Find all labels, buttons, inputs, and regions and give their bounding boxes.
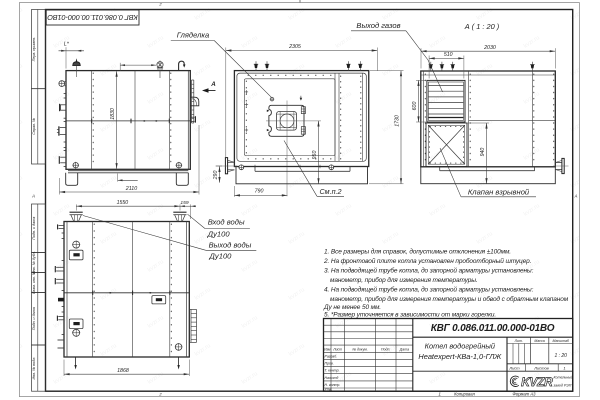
svg-text:Клапан взрывной: Клапан взрывной bbox=[468, 187, 530, 196]
svg-text:А: А bbox=[210, 81, 216, 88]
svg-text:1 : 20: 1 : 20 bbox=[554, 353, 567, 359]
svg-text:завод РЭП: завод РЭП bbox=[553, 384, 572, 388]
svg-text:940: 940 bbox=[480, 148, 486, 157]
svg-text:2110: 2110 bbox=[125, 186, 137, 192]
svg-text:Подп. и дата: Подп. и дата bbox=[32, 217, 36, 240]
svg-text:КВГ 0.086.011.00.000-01ВО: КВГ 0.086.011.00.000-01ВО bbox=[431, 323, 555, 334]
svg-text:1868: 1868 bbox=[117, 368, 129, 374]
svg-text:А ( 1 : 20 ): А ( 1 : 20 ) bbox=[464, 22, 500, 31]
svg-text:Ду100: Ду100 bbox=[209, 252, 233, 261]
svg-text:Масштаб: Масштаб bbox=[553, 339, 570, 343]
svg-text:Справ. №: Справ. № bbox=[32, 118, 36, 135]
svg-text:Котел водогрейный: Котел водогрейный bbox=[425, 341, 495, 350]
svg-text:А: А bbox=[31, 194, 35, 199]
svg-text:Лит.: Лит. bbox=[514, 339, 523, 343]
svg-text:См.п.2: См.п.2 bbox=[319, 187, 341, 196]
svg-text:Подп.: Подп. bbox=[381, 347, 390, 351]
svg-text:Инв. № подл.: Инв. № подл. bbox=[32, 357, 36, 380]
svg-text:манометр, прибор для измерения: манометр, прибор для измерения температу… bbox=[330, 276, 478, 284]
svg-text:510: 510 bbox=[444, 52, 453, 58]
svg-text:Подп. и дата: Подп. и дата bbox=[32, 307, 36, 330]
svg-text:Ду не менее 50 мм.: Ду не менее 50 мм. bbox=[323, 304, 381, 311]
svg-text:№ докум.: № докум. bbox=[352, 347, 367, 351]
svg-text:KVZR: KVZR bbox=[521, 375, 553, 389]
svg-text:Вход воды: Вход воды bbox=[208, 218, 245, 227]
svg-text:5. *Размер уточняется в зависи: 5. *Размер уточняется в зависимости от м… bbox=[324, 312, 496, 319]
svg-text:Взам. инв. №: Взам. инв. № bbox=[32, 271, 36, 294]
svg-text:Разраб.: Разраб. bbox=[325, 354, 338, 358]
svg-text:1: 1 bbox=[563, 365, 565, 370]
svg-text:А: А bbox=[574, 194, 578, 199]
svg-text:950: 950 bbox=[312, 151, 318, 160]
svg-text:159: 159 bbox=[180, 200, 188, 206]
svg-text:Листов: Листов bbox=[533, 365, 549, 370]
svg-text:1830: 1830 bbox=[110, 108, 116, 120]
svg-text:манометр, прибор для измерения: манометр, прибор для измерения температу… bbox=[330, 295, 569, 303]
svg-text:1550: 1550 bbox=[117, 200, 129, 206]
svg-text:1. Все размеры для справок, до: 1. Все размеры для справок, допустимые о… bbox=[324, 248, 511, 256]
svg-text:Лист: Лист bbox=[508, 365, 520, 370]
svg-text:Лист: Лист bbox=[332, 347, 342, 351]
svg-text:Heatexpert-КВа-1,0-ГЛЖ: Heatexpert-КВа-1,0-ГЛЖ bbox=[418, 352, 502, 361]
svg-text:Утв.: Утв. bbox=[325, 388, 333, 392]
svg-text:2030: 2030 bbox=[483, 45, 496, 51]
svg-text:Пров.: Пров. bbox=[325, 362, 334, 366]
svg-text:1: 1 bbox=[439, 391, 441, 396]
svg-text:Ду100: Ду100 bbox=[207, 229, 231, 238]
svg-text:Выход воды: Выход воды bbox=[209, 240, 252, 249]
svg-text:4. На подводящей трубе котла,: 4. На подводящей трубе котла, до запорно… bbox=[324, 286, 534, 294]
svg-text:600: 600 bbox=[412, 102, 418, 111]
svg-text:Дата: Дата bbox=[399, 347, 409, 351]
svg-text:Копировал: Копировал bbox=[454, 391, 475, 396]
svg-text:Т. контр.: Т. контр. bbox=[325, 369, 340, 373]
svg-text:2305: 2305 bbox=[288, 44, 301, 50]
svg-text:Гляделка: Гляделка bbox=[177, 31, 209, 40]
svg-text:Выход газов: Выход газов bbox=[356, 21, 400, 30]
svg-text:Н. контр.: Н. контр. bbox=[325, 383, 341, 387]
svg-text:Формат А3: Формат А3 bbox=[513, 391, 537, 396]
svg-text:КВГ 0.086.011.00.000-01ВО: КВГ 0.086.011.00.000-01ВО bbox=[47, 13, 138, 22]
svg-text:3. На подводящей трубе котла,: 3. На подводящей трубе котла, до запорно… bbox=[324, 267, 534, 275]
svg-text:Нач.отд: Нач.отд bbox=[325, 376, 339, 380]
svg-text:290: 290 bbox=[213, 171, 219, 181]
svg-text:Инв. № дубл.: Инв. № дубл. bbox=[32, 251, 36, 274]
svg-text:Масса: Масса bbox=[534, 339, 544, 343]
svg-text:1730: 1730 bbox=[395, 115, 401, 127]
svg-text:790: 790 bbox=[255, 189, 264, 195]
svg-text:2. На фронтовой плите котла ус: 2. На фронтовой плите котла установлен п… bbox=[323, 257, 532, 265]
svg-text:Перв. примен.: Перв. примен. bbox=[32, 37, 36, 62]
svg-text:Изм: Изм bbox=[324, 347, 331, 351]
svg-text:Котельный: Котельный bbox=[554, 376, 574, 380]
